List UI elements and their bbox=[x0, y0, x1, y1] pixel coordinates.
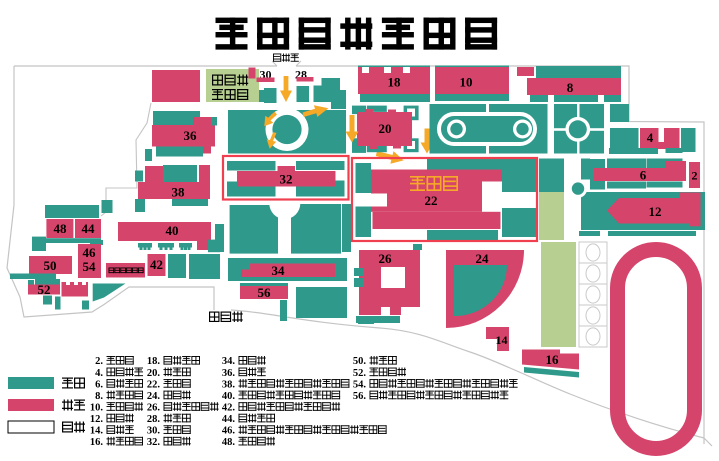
svg-text:16: 16 bbox=[546, 352, 560, 367]
svg-text:48.: 48. bbox=[222, 437, 236, 448]
svg-text:42.: 42. bbox=[222, 402, 236, 413]
svg-text:56: 56 bbox=[258, 285, 272, 300]
svg-text:18.: 18. bbox=[147, 356, 161, 367]
svg-text:56.: 56. bbox=[353, 391, 367, 402]
svg-text:32: 32 bbox=[280, 172, 293, 187]
svg-text:14: 14 bbox=[496, 333, 508, 347]
svg-text:46: 46 bbox=[83, 245, 97, 260]
svg-text:54.: 54. bbox=[353, 379, 367, 390]
svg-text:46.: 46. bbox=[222, 426, 236, 437]
svg-text:34: 34 bbox=[272, 263, 286, 278]
svg-text:2.: 2. bbox=[95, 356, 103, 367]
svg-text:52.: 52. bbox=[353, 368, 367, 379]
svg-text:44.: 44. bbox=[222, 414, 236, 425]
svg-text:14.: 14. bbox=[90, 426, 104, 437]
svg-text:30.: 30. bbox=[147, 426, 161, 437]
svg-text:40: 40 bbox=[166, 223, 179, 238]
svg-text:6: 6 bbox=[640, 168, 647, 183]
svg-text:50.: 50. bbox=[353, 356, 367, 367]
svg-text:4.: 4. bbox=[95, 368, 103, 379]
svg-text:26: 26 bbox=[379, 251, 393, 266]
svg-text:38: 38 bbox=[172, 185, 186, 200]
svg-text:12.: 12. bbox=[90, 414, 104, 425]
svg-text:50: 50 bbox=[44, 258, 57, 273]
svg-text:4: 4 bbox=[647, 130, 654, 145]
svg-text:36: 36 bbox=[184, 128, 198, 143]
svg-text:2: 2 bbox=[692, 169, 698, 183]
svg-text:8: 8 bbox=[567, 80, 574, 95]
svg-text:54: 54 bbox=[83, 259, 97, 274]
svg-text:22.: 22. bbox=[147, 379, 161, 390]
svg-text:36.: 36. bbox=[222, 368, 236, 379]
svg-text:38.: 38. bbox=[222, 379, 236, 390]
svg-text:10.: 10. bbox=[90, 402, 104, 413]
svg-text:12: 12 bbox=[649, 204, 662, 219]
svg-text:24.: 24. bbox=[147, 391, 161, 402]
svg-text:40.: 40. bbox=[222, 391, 236, 402]
svg-text:8.: 8. bbox=[95, 391, 103, 402]
svg-text:10: 10 bbox=[460, 75, 473, 90]
svg-text:44: 44 bbox=[82, 221, 96, 236]
svg-text:6.: 6. bbox=[95, 379, 103, 390]
svg-text:24: 24 bbox=[476, 251, 490, 266]
svg-text:42: 42 bbox=[150, 257, 163, 272]
svg-text:28.: 28. bbox=[147, 414, 161, 425]
svg-text:32.: 32. bbox=[147, 437, 161, 448]
svg-text:52: 52 bbox=[38, 282, 51, 297]
svg-text:48: 48 bbox=[54, 221, 68, 236]
svg-text:18: 18 bbox=[388, 75, 402, 90]
svg-text:20: 20 bbox=[379, 121, 392, 136]
svg-text:34.: 34. bbox=[222, 356, 236, 367]
svg-text:22: 22 bbox=[425, 193, 438, 208]
svg-text:26.: 26. bbox=[147, 402, 161, 413]
svg-text:20.: 20. bbox=[147, 368, 161, 379]
svg-text:16.: 16. bbox=[90, 437, 104, 448]
